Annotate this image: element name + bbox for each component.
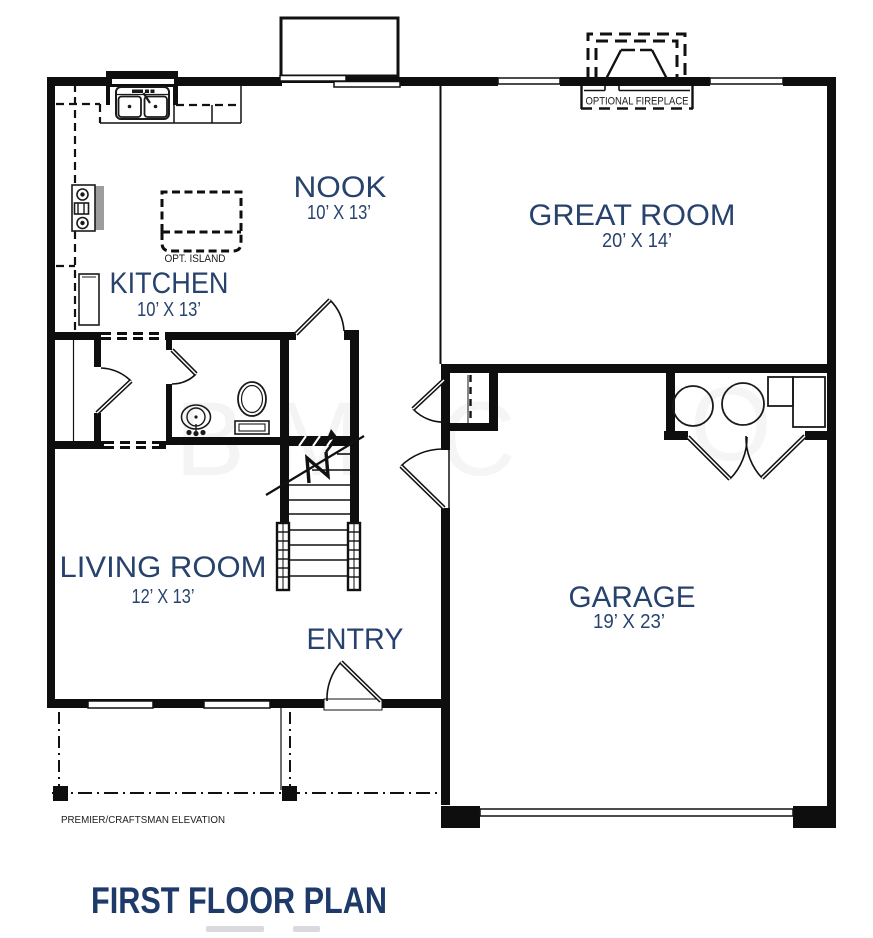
svg-text:GARAGE: GARAGE — [569, 581, 696, 614]
svg-text:FIRST FLOOR PLAN: FIRST FLOOR PLAN — [91, 880, 387, 921]
svg-text:OPT. ISLAND: OPT. ISLAND — [165, 253, 226, 265]
svg-text:OPTIONAL FIREPLACE: OPTIONAL FIREPLACE — [586, 96, 689, 108]
svg-text:GREAT ROOM: GREAT ROOM — [529, 199, 736, 232]
svg-text:10’ X 13’: 10’ X 13’ — [137, 299, 201, 321]
svg-text:20’ X 14’: 20’ X 14’ — [602, 230, 672, 252]
svg-text:19’ X 23’: 19’ X 23’ — [593, 611, 665, 633]
svg-text:ENTRY: ENTRY — [307, 623, 404, 656]
svg-text:PREMIER/CRAFTSMAN ELEVATION: PREMIER/CRAFTSMAN ELEVATION — [61, 814, 225, 826]
svg-text:LIVING ROOM: LIVING ROOM — [60, 551, 267, 584]
svg-text:NOOK: NOOK — [294, 171, 387, 204]
svg-text:12’ X 13’: 12’ X 13’ — [132, 586, 195, 608]
svg-text:10’ X 13’: 10’ X 13’ — [307, 202, 371, 224]
svg-text:C: C — [440, 381, 516, 498]
svg-text:KITCHEN: KITCHEN — [110, 267, 229, 300]
